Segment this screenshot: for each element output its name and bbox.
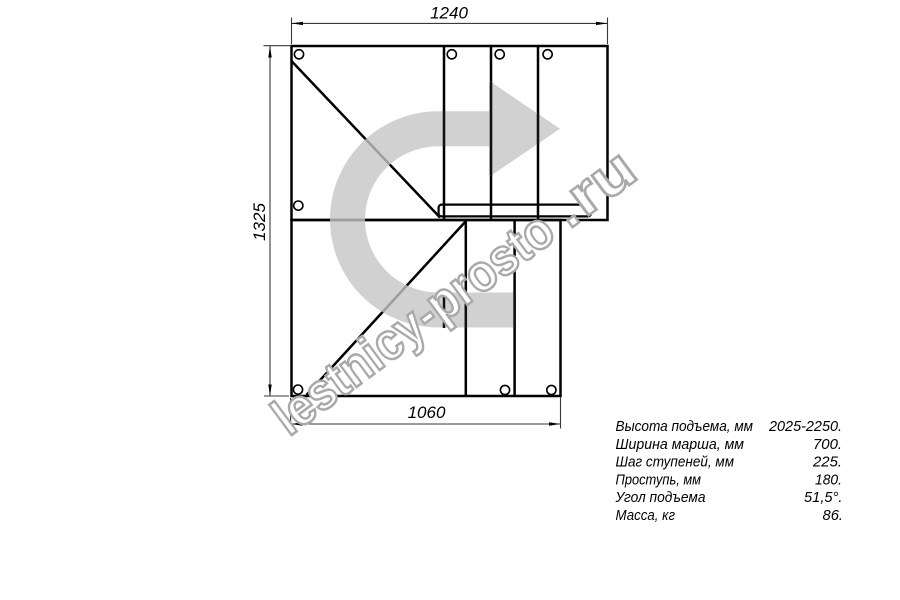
svg-text:Угол подъема: Угол подъема (615, 489, 706, 506)
svg-text:Ширина марша, мм: Ширина марша, мм (616, 436, 745, 453)
svg-text:1240: 1240 (430, 3, 468, 22)
svg-text:1325: 1325 (250, 203, 269, 241)
svg-text:700.: 700. (813, 436, 842, 453)
svg-text:51,5°.: 51,5°. (804, 489, 843, 506)
svg-text:1060: 1060 (408, 403, 446, 422)
svg-text:Шаг ступеней, мм: Шаг ступеней, мм (616, 454, 735, 471)
svg-text:Масса, кг: Масса, кг (616, 507, 676, 524)
svg-text:86.: 86. (823, 507, 844, 524)
svg-text:2025-2250.: 2025-2250. (768, 418, 842, 435)
svg-text:225.: 225. (812, 454, 842, 471)
svg-text:Высота подъема, мм: Высота подъема, мм (616, 418, 754, 435)
svg-text:Проступь, мм: Проступь, мм (616, 471, 702, 488)
svg-text:180.: 180. (815, 471, 842, 488)
